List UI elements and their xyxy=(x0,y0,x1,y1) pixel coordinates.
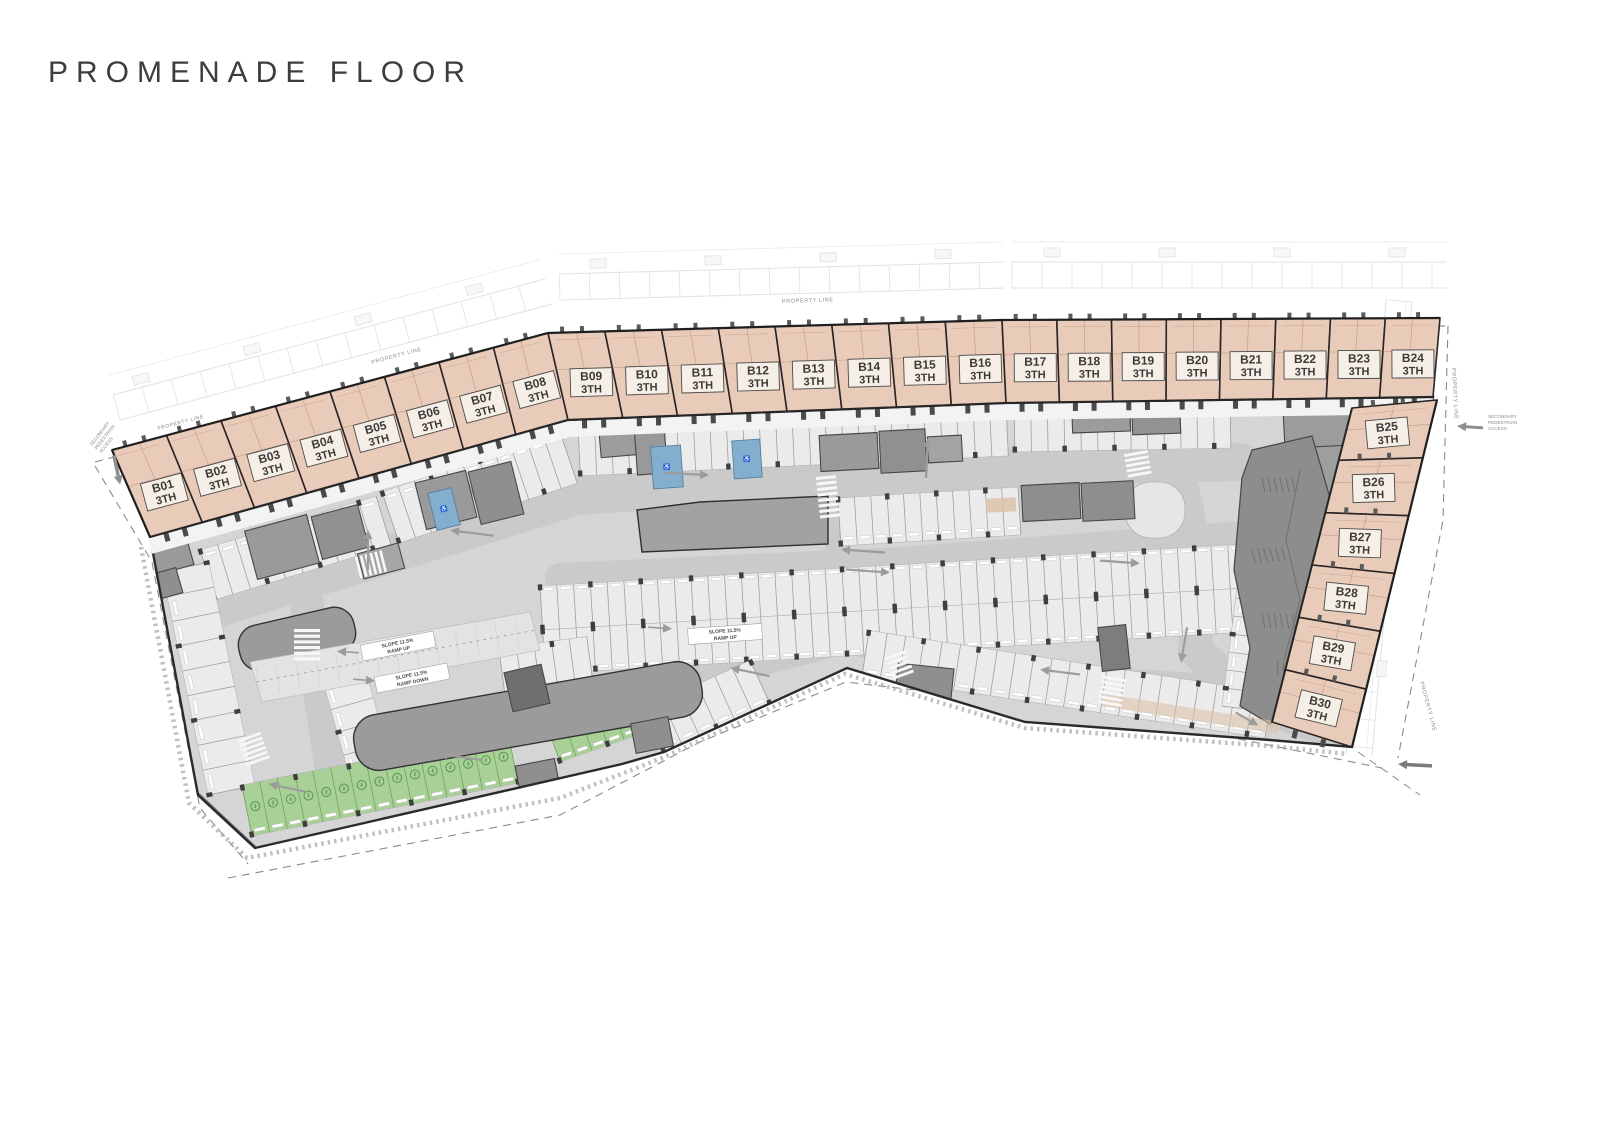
unit-type: 3TH xyxy=(970,370,991,383)
core-block xyxy=(879,429,927,473)
unit-type: 3TH xyxy=(859,374,880,387)
unit-type: 3TH xyxy=(915,372,936,385)
unit-type: 3TH xyxy=(1187,368,1208,380)
unit-type: 3TH xyxy=(692,380,713,393)
unit-type: 3TH xyxy=(1133,368,1154,380)
unit-type: 3TH xyxy=(581,383,602,396)
core-block xyxy=(927,435,962,463)
unit-type: 3TH xyxy=(1241,367,1262,379)
unit-code: B26 xyxy=(1362,475,1385,490)
direction-arrow xyxy=(1457,422,1484,433)
unit-code: B21 xyxy=(1240,352,1262,366)
unit-type: 3TH xyxy=(1025,369,1046,381)
unit-type: 3TH xyxy=(748,378,769,391)
unit-type: 3TH xyxy=(1295,366,1316,378)
accessible-stall: ♿ xyxy=(732,439,763,479)
secondary-access-label-right: SECONDARYPEDESTRIANACCESS xyxy=(1488,414,1517,431)
svg-text:ACCESS: ACCESS xyxy=(1488,426,1507,431)
unit-code: B27 xyxy=(1349,530,1372,545)
unit-code: B11 xyxy=(691,365,713,380)
floor-plan-page: PROMENADE FLOOR SLOPE 11.5%RAMP UPSLOPE … xyxy=(0,0,1600,1136)
unit-B20[interactable]: B203TH xyxy=(1166,313,1221,409)
accessible-stall: ♿ xyxy=(651,445,684,489)
unit-code: B13 xyxy=(802,361,825,376)
core-block xyxy=(1021,483,1081,522)
unit-B16[interactable]: B163TH xyxy=(945,315,1006,414)
core-block xyxy=(1098,625,1130,672)
core-block xyxy=(1081,481,1135,522)
unit-B23[interactable]: B233TH xyxy=(1326,312,1385,407)
unit-B14[interactable]: B143TH xyxy=(832,318,897,418)
unit-B19[interactable]: B193TH xyxy=(1112,313,1167,410)
unit-type: 3TH xyxy=(1377,433,1399,447)
unit-code: B28 xyxy=(1335,584,1359,600)
unit-type: 3TH xyxy=(1363,489,1384,502)
unit-code: B24 xyxy=(1402,351,1424,365)
core-block xyxy=(819,433,879,472)
unit-type: 3TH xyxy=(1349,366,1370,378)
core-block xyxy=(630,717,673,754)
context-band xyxy=(559,242,1004,300)
property-line-label: PROPERTY LINE xyxy=(782,297,834,305)
unit-type: 3TH xyxy=(1334,599,1356,613)
unit-code: B22 xyxy=(1294,352,1316,366)
unit-code: B10 xyxy=(636,367,659,382)
unit-code: B23 xyxy=(1348,351,1370,365)
svg-text:SECONDARY: SECONDARY xyxy=(1488,414,1517,419)
svg-text:PEDESTRIAN: PEDESTRIAN xyxy=(1488,420,1517,425)
unit-B18[interactable]: B183TH xyxy=(1057,314,1113,411)
context-band xyxy=(1012,242,1446,288)
unit-type: 3TH xyxy=(637,382,658,395)
unit-B15[interactable]: B153TH xyxy=(889,316,952,415)
unit-code: B09 xyxy=(580,369,603,384)
unit-code: B17 xyxy=(1024,355,1046,369)
unit-B22[interactable]: B223TH xyxy=(1273,313,1331,408)
unit-B17[interactable]: B173TH xyxy=(1002,314,1059,412)
unit-code: B14 xyxy=(858,359,881,374)
unit-code: B15 xyxy=(914,357,937,372)
unit-type: 3TH xyxy=(1403,365,1424,377)
unit-code: B12 xyxy=(747,363,770,378)
unit-type: 3TH xyxy=(1079,369,1100,381)
core-block xyxy=(504,664,550,712)
unit-code: B18 xyxy=(1078,354,1100,368)
property-line-label: PROPERTY LINE xyxy=(1450,368,1459,420)
direction-arrow xyxy=(1398,760,1432,771)
unit-type: 3TH xyxy=(803,376,824,389)
unit-code: B25 xyxy=(1375,419,1399,435)
unit-code: B16 xyxy=(969,356,992,371)
unit-code: B19 xyxy=(1132,354,1154,368)
property-line-label: PROPERTY LINE xyxy=(1418,681,1437,732)
floor-plan-drawing: SLOPE 11.5%RAMP UPSLOPE 11.5%RAMP DOWNSL… xyxy=(0,0,1600,1136)
unit-type: 3TH xyxy=(1349,544,1370,557)
unit-B24[interactable]: B243TH xyxy=(1380,312,1440,406)
unit-code: B20 xyxy=(1186,353,1208,367)
unit-B21[interactable]: B213TH xyxy=(1220,313,1276,409)
